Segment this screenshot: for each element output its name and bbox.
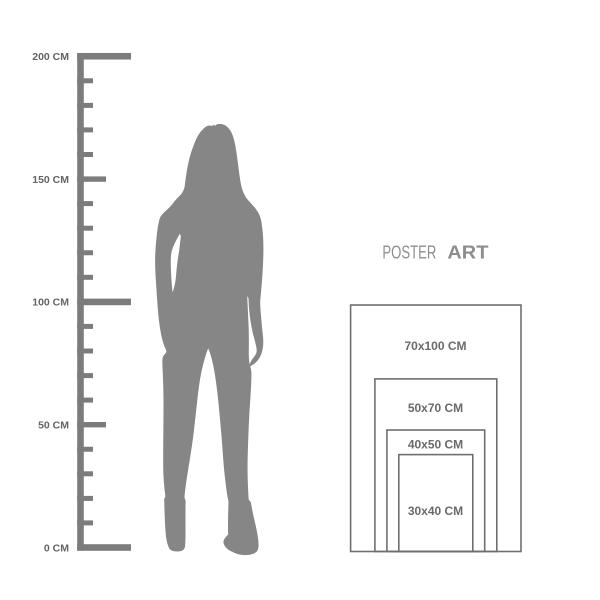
- svg-text:150 CM: 150 CM: [32, 174, 69, 186]
- svg-text:ART: ART: [447, 242, 489, 263]
- svg-text:50x70 CM: 50x70 CM: [408, 401, 463, 415]
- svg-text:200 CM: 200 CM: [32, 51, 69, 63]
- svg-text:POSTER: POSTER: [382, 242, 436, 263]
- svg-text:30x40 CM: 30x40 CM: [408, 504, 463, 518]
- svg-text:100 CM: 100 CM: [32, 297, 69, 309]
- svg-text:50 CM: 50 CM: [38, 420, 69, 432]
- svg-text:70x100 CM: 70x100 CM: [404, 339, 466, 353]
- svg-text:40x50 CM: 40x50 CM: [408, 437, 463, 451]
- svg-text:0 CM: 0 CM: [44, 542, 69, 554]
